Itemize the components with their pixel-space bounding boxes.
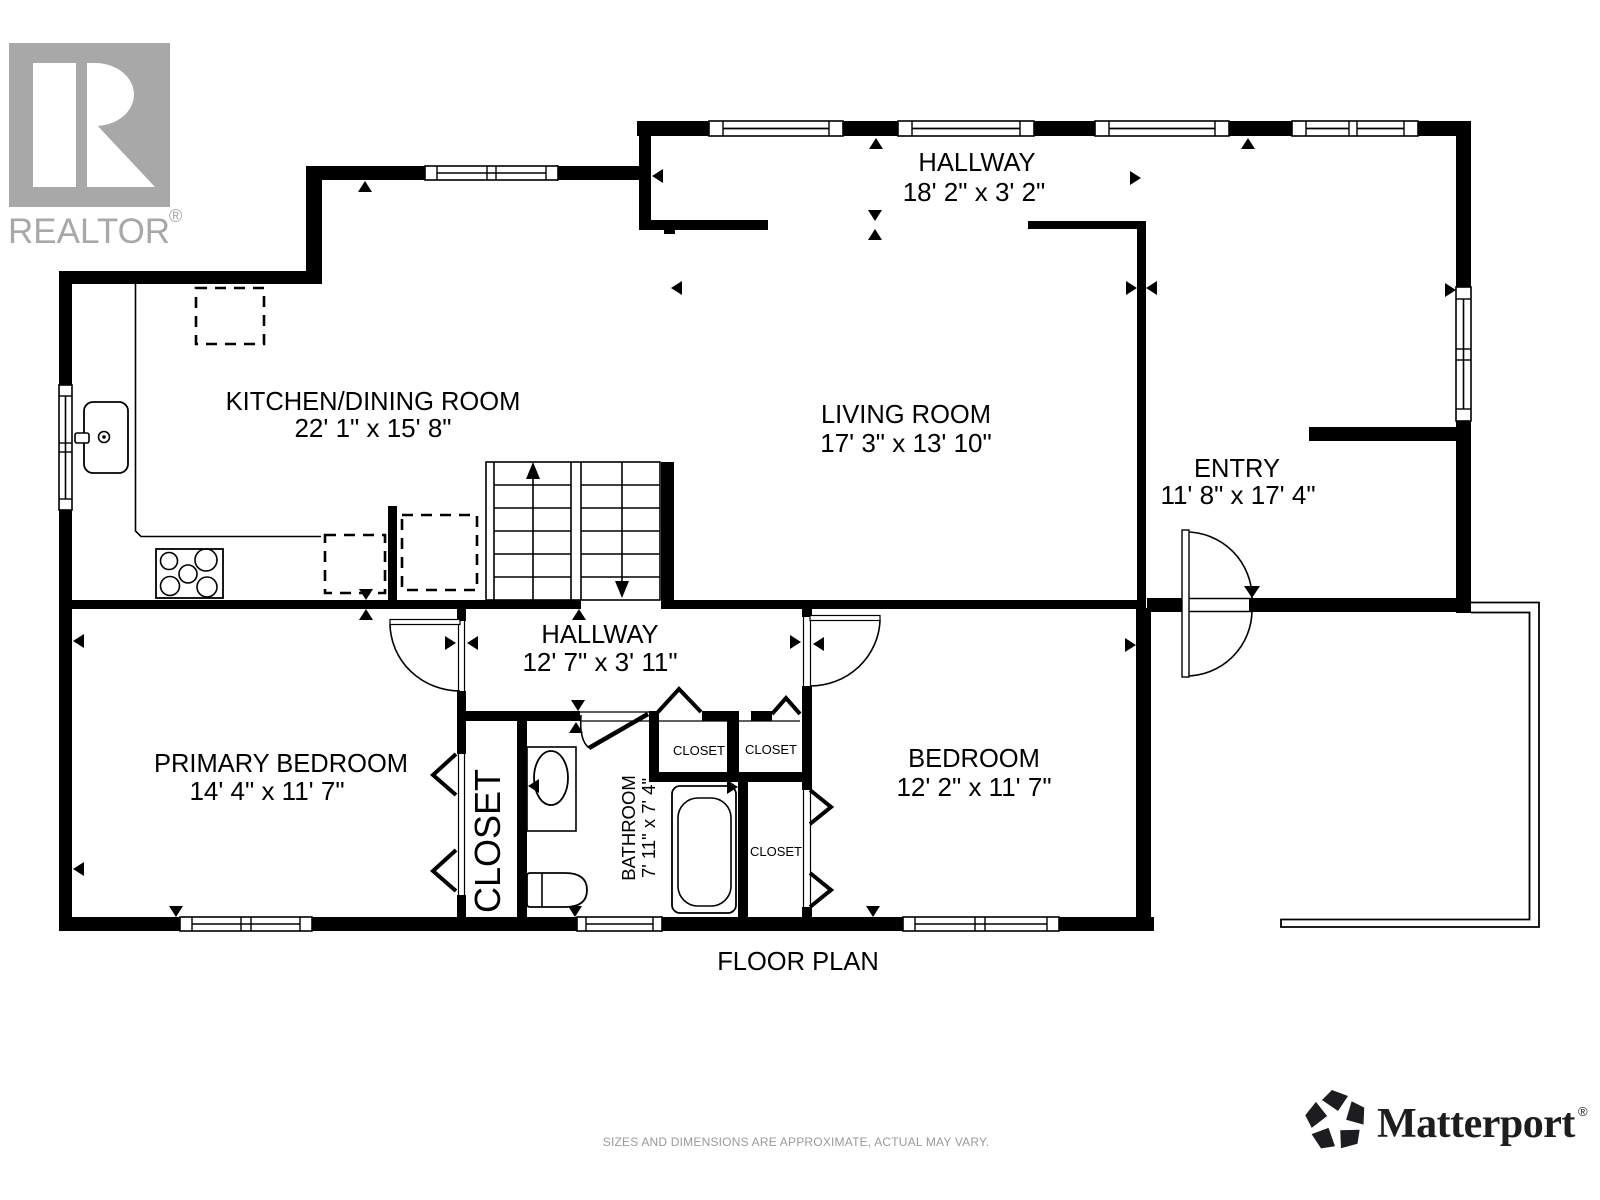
svg-text:CLOSET: CLOSET xyxy=(673,743,725,758)
svg-text:FLOOR PLAN: FLOOR PLAN xyxy=(717,948,879,976)
svg-text:12' 7" x 3' 11": 12' 7" x 3' 11" xyxy=(522,647,677,677)
svg-text:11' 8" x 17' 4": 11' 8" x 17' 4" xyxy=(1160,480,1315,510)
svg-text:BEDROOM: BEDROOM xyxy=(908,745,1040,773)
svg-text:12' 2" x 11' 7": 12' 2" x 11' 7" xyxy=(896,772,1051,802)
svg-text:17' 3" x 13' 10": 17' 3" x 13' 10" xyxy=(820,428,992,458)
svg-text:CLOSET: CLOSET xyxy=(750,844,802,859)
svg-text:HALLWAY: HALLWAY xyxy=(918,149,1035,177)
svg-text:18' 2" x 3' 2": 18' 2" x 3' 2" xyxy=(903,177,1046,207)
svg-text:CLOSET: CLOSET xyxy=(745,742,797,757)
svg-text:PRIMARY BEDROOM: PRIMARY BEDROOM xyxy=(154,750,408,778)
svg-text:HALLWAY: HALLWAY xyxy=(541,621,658,649)
svg-text:22' 1" x 15' 8": 22' 1" x 15' 8" xyxy=(294,413,451,443)
svg-text:®: ® xyxy=(169,206,182,226)
svg-text:ENTRY: ENTRY xyxy=(1194,455,1280,483)
svg-text:CLOSET: CLOSET xyxy=(467,769,508,913)
svg-text:BATHROOM: BATHROOM xyxy=(618,775,639,881)
svg-text:Matterport: Matterport xyxy=(1377,1101,1575,1147)
svg-text:7' 11" x 7' 4": 7' 11" x 7' 4" xyxy=(638,778,659,878)
svg-text:KITCHEN/DINING ROOM: KITCHEN/DINING ROOM xyxy=(226,388,521,416)
svg-text:14' 4" x 11' 7": 14' 4" x 11' 7" xyxy=(189,776,344,806)
svg-text:®: ® xyxy=(1578,1104,1588,1119)
svg-text:SIZES AND DIMENSIONS ARE APPRO: SIZES AND DIMENSIONS ARE APPROXIMATE, AC… xyxy=(603,1135,989,1149)
svg-text:LIVING ROOM: LIVING ROOM xyxy=(821,401,991,429)
svg-text:REALTOR: REALTOR xyxy=(8,212,170,251)
